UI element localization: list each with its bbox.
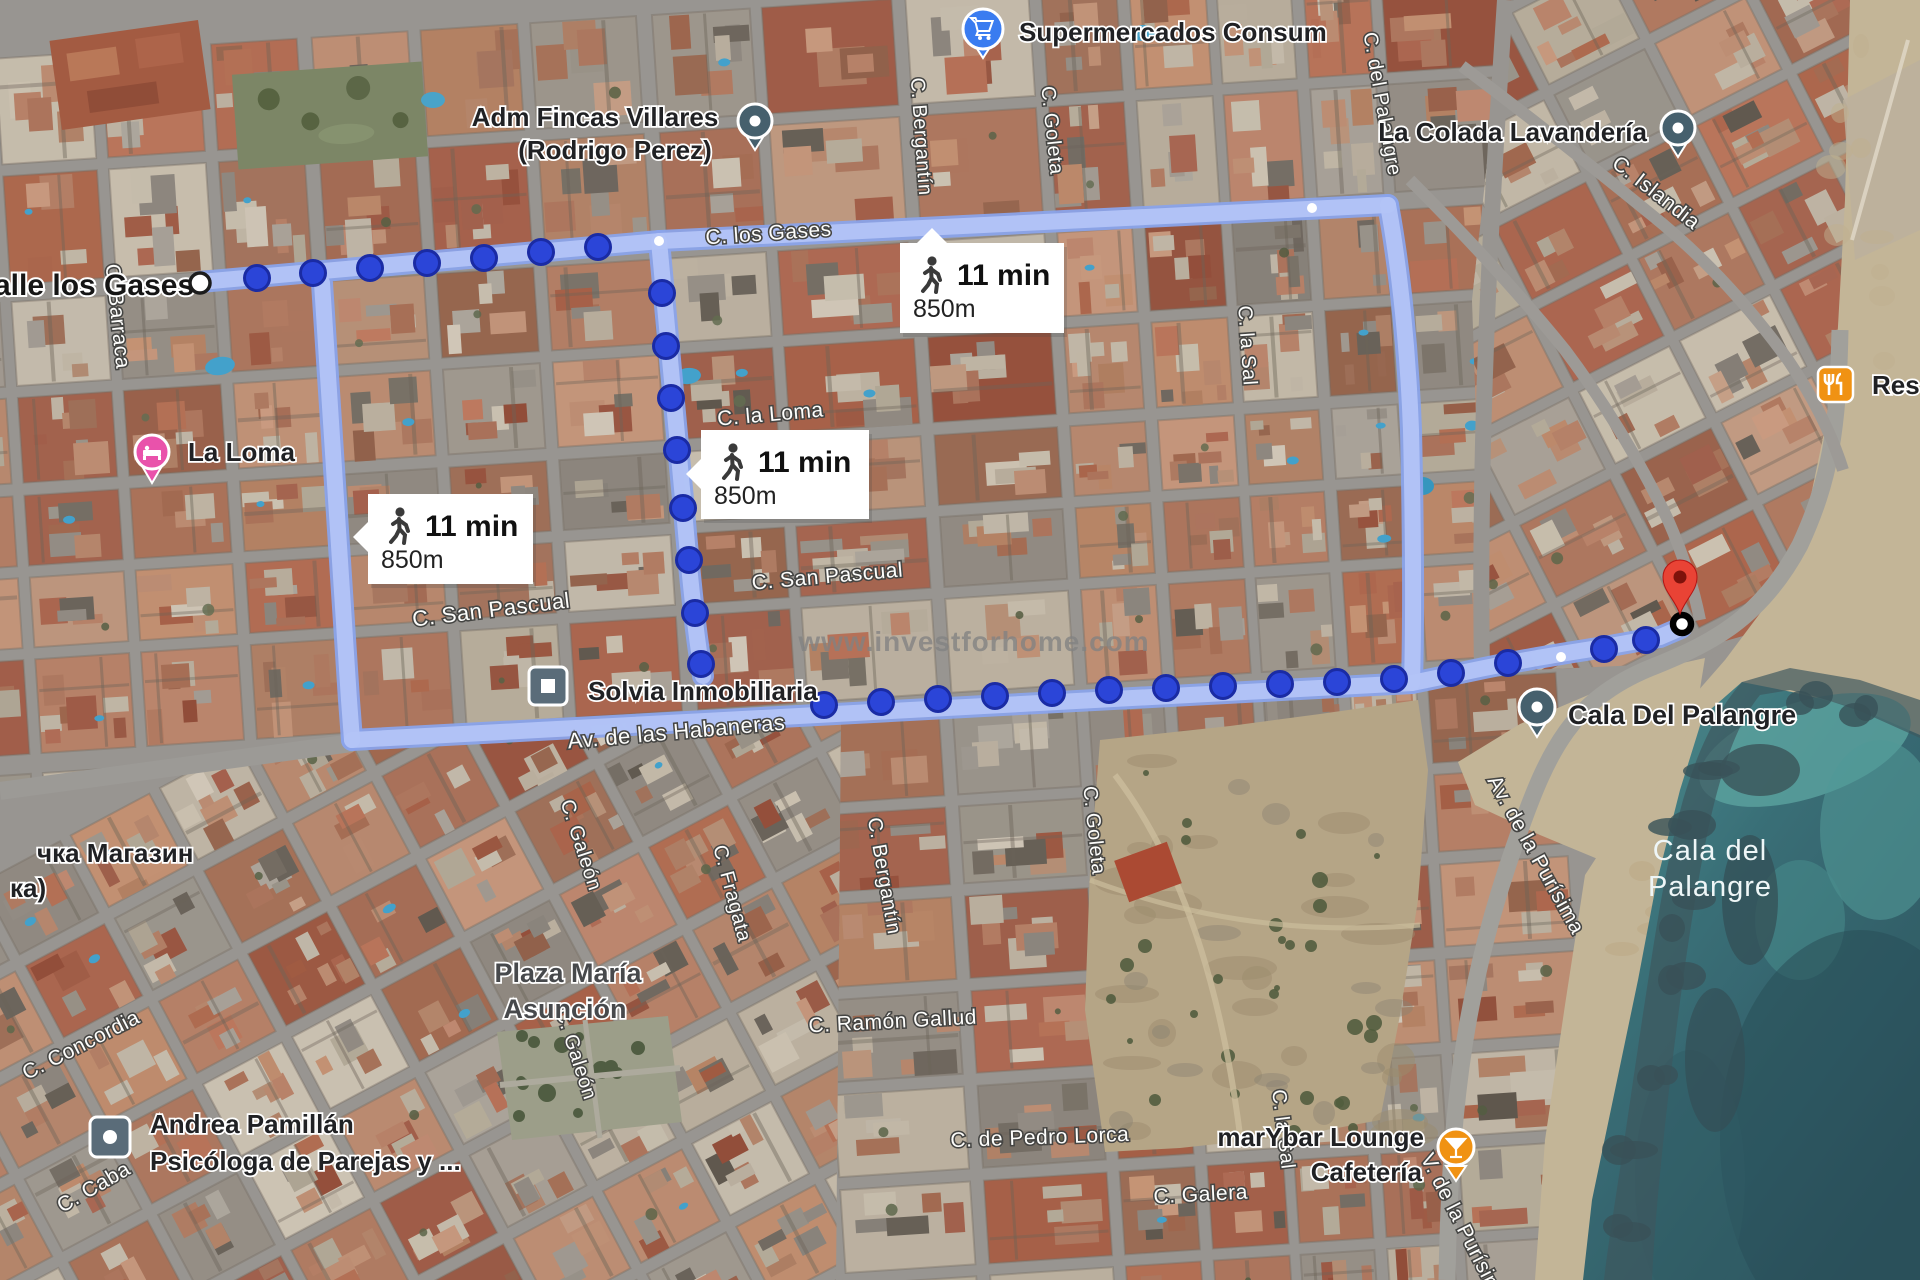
svg-text:(Rodrigo Perez): (Rodrigo Perez) bbox=[518, 135, 712, 165]
svg-text:чка Магазин: чка Магазин bbox=[37, 838, 193, 868]
svg-text:www.investforhome.com: www.investforhome.com bbox=[797, 626, 1149, 657]
svg-text:Supermercados Consum: Supermercados Consum bbox=[1019, 17, 1327, 47]
svg-text:Adm Fincas Villares: Adm Fincas Villares bbox=[472, 102, 719, 132]
svg-text:Solvia Inmobiliaria: Solvia Inmobiliaria bbox=[588, 676, 818, 706]
svg-text:Res: Res bbox=[1872, 370, 1920, 400]
svg-text:Cafetería: Cafetería bbox=[1311, 1157, 1423, 1187]
svg-text:11 min: 11 min bbox=[957, 259, 1050, 292]
svg-text:11 min: 11 min bbox=[758, 446, 851, 479]
svg-text:Cala Del Palangre: Cala Del Palangre bbox=[1568, 700, 1796, 730]
svg-text:La Colada Lavandería: La Colada Lavandería bbox=[1378, 117, 1647, 147]
svg-text:Plaza María: Plaza María bbox=[494, 958, 642, 988]
svg-text:Psicóloga de Parejas y ...: Psicóloga de Parejas y ... bbox=[150, 1146, 461, 1176]
svg-text:Palangre: Palangre bbox=[1648, 871, 1772, 903]
svg-text:Andrea Pamillán: Andrea Pamillán bbox=[150, 1109, 354, 1139]
svg-text:850m: 850m bbox=[714, 482, 777, 510]
svg-text:Cala del: Cala del bbox=[1653, 835, 1767, 867]
svg-text:alle los Gases: alle los Gases bbox=[0, 269, 194, 302]
svg-text:850m: 850m bbox=[381, 546, 444, 574]
svg-text:850m: 850m bbox=[913, 295, 976, 323]
svg-text:11 min: 11 min bbox=[425, 510, 518, 543]
svg-text:Asunción: Asunción bbox=[503, 994, 626, 1024]
svg-text:ка): ка) bbox=[10, 873, 46, 903]
svg-text:marYbar Lounge: marYbar Lounge bbox=[1217, 1122, 1424, 1152]
svg-text:La Loma: La Loma bbox=[188, 437, 295, 467]
